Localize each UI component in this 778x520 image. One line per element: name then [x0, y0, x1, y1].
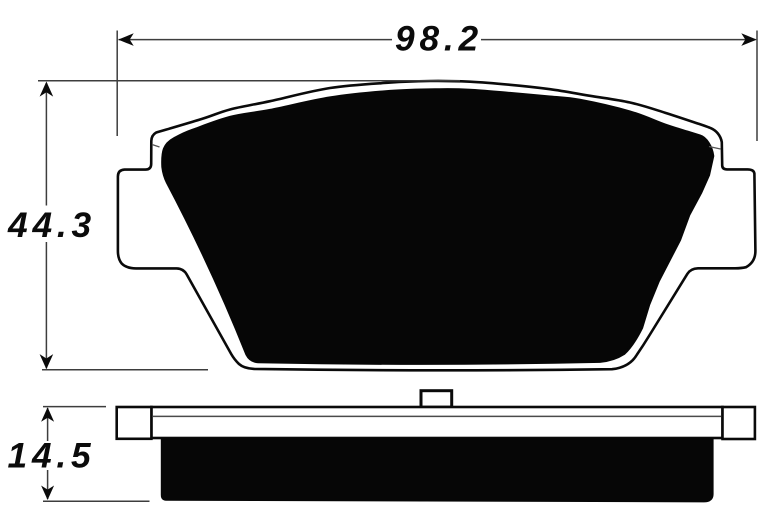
svg-text:14.5: 14.5 [8, 437, 96, 476]
svg-text:44.3: 44.3 [7, 206, 96, 245]
svg-text:98.2: 98.2 [395, 20, 483, 59]
